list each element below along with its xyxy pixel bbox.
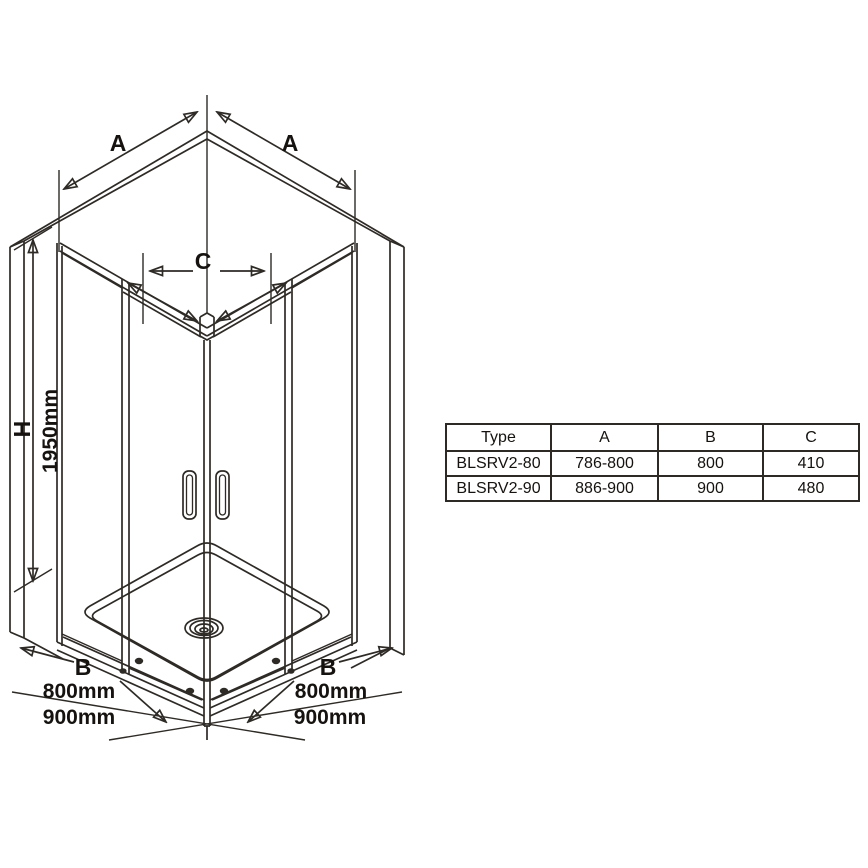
cell-b-blsrv2-80: 800 xyxy=(658,451,763,476)
door-handle-right xyxy=(216,471,229,519)
cell-c-blsrv2-90: 480 xyxy=(763,476,859,501)
table-row: BLSRV2-90 886-900 900 480 xyxy=(446,476,859,501)
height-value-label: 1950mm xyxy=(39,389,62,473)
dim-label-a-right: A xyxy=(282,130,299,156)
right-wall-front-edge xyxy=(351,241,404,668)
table-header-row: Type A B C xyxy=(446,424,859,451)
cell-c-blsrv2-80: 410 xyxy=(763,451,859,476)
dim-label-b-left: B xyxy=(75,654,92,680)
dim-label-h: H xyxy=(9,421,35,438)
spec-table: Type A B C BLSRV2-80 786-800 800 410 BLS… xyxy=(445,423,860,502)
width-900-left: 900mm xyxy=(43,706,115,729)
table-header-c: C xyxy=(763,424,859,451)
door-top-edge-left xyxy=(123,292,201,337)
width-800-right: 800mm xyxy=(295,680,367,703)
fixed-glass-edges-left xyxy=(62,253,122,661)
table-header-a: A xyxy=(551,424,658,451)
dim-arrow-a-left xyxy=(64,112,197,189)
dim-label-b-right: B xyxy=(320,654,337,680)
table-row: BLSRV2-80 786-800 800 410 xyxy=(446,451,859,476)
dim-label-a-left: A xyxy=(110,130,127,156)
top-rail-left xyxy=(60,243,207,336)
cell-a-blsrv2-90: 886-900 xyxy=(551,476,658,501)
cell-type-blsrv2-80: BLSRV2-80 xyxy=(446,451,551,476)
cell-a-blsrv2-80: 786-800 xyxy=(551,451,658,476)
mid-stile-right xyxy=(285,279,292,674)
fixed-glass-edges-right xyxy=(292,253,352,661)
top-rail-right xyxy=(207,243,354,336)
width-900-right: 900mm xyxy=(294,706,366,729)
table-header-b: B xyxy=(658,424,763,451)
width-800-left: 800mm xyxy=(43,680,115,703)
tray-rim-inner xyxy=(93,553,322,680)
corner-stile-right xyxy=(352,243,357,646)
left-wall-top-outer-edge xyxy=(10,131,207,247)
right-wall-top-inner-edge xyxy=(207,139,390,241)
glass-enclosure xyxy=(57,95,357,740)
right-wall-top-outer-edge xyxy=(207,131,404,247)
cell-b-blsrv2-90: 900 xyxy=(658,476,763,501)
corner-post xyxy=(204,340,210,708)
cell-type-blsrv2-90: BLSRV2-90 xyxy=(446,476,551,501)
shower-enclosure-datasheet: { "colors": { "line": "#2e2a26", "text":… xyxy=(0,0,868,868)
door-handle-left xyxy=(183,471,196,519)
dim-label-c: C xyxy=(195,248,212,274)
mid-stile-left xyxy=(122,279,129,674)
table-header-type: Type xyxy=(446,424,551,451)
door-top-edge-right xyxy=(213,292,291,337)
